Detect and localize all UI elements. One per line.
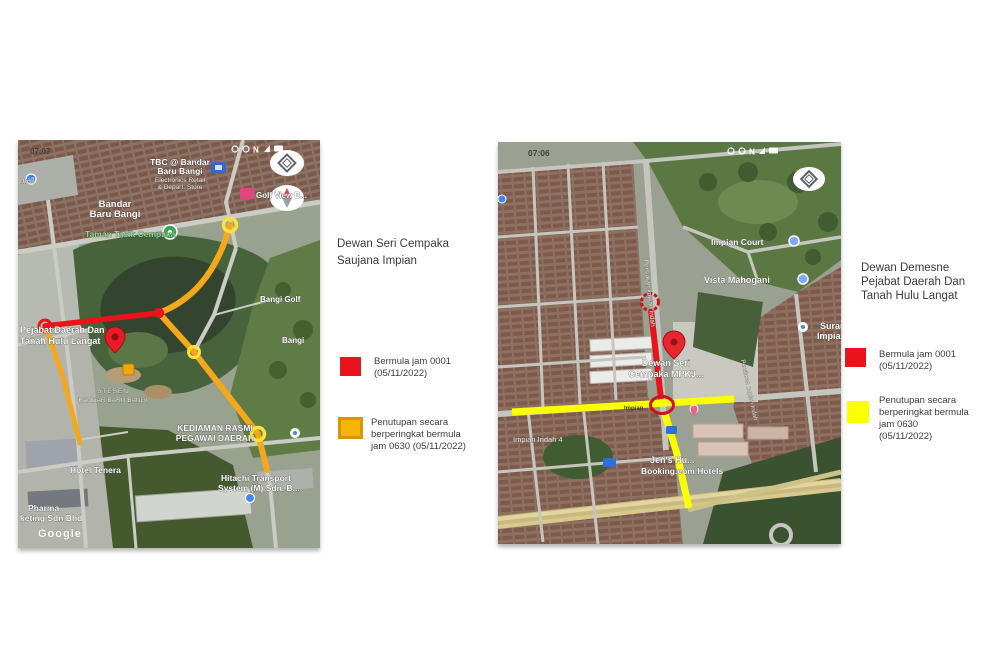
right-map-title-line3: Tanah Hulu Langat: [861, 289, 991, 303]
left-map-title-line2: Saujana Impian: [337, 253, 477, 270]
left-legend-orange-line3: jam 0630 (05/11/2022): [371, 441, 466, 453]
right-legend-yellow-line4: (05/11/2022): [879, 431, 969, 443]
left-store-marker-icon: [211, 162, 226, 173]
vista-marker-icon: [798, 274, 808, 284]
left-map-title: Dewan Seri Cempaka Saujana Impian: [337, 236, 477, 270]
left-legend-orange-swatch: [338, 417, 363, 439]
left-legend-orange-line2: berperingkat bermula: [371, 429, 466, 441]
route-shield-icon: [123, 364, 134, 375]
map-label-surau1: Surau: [820, 321, 841, 331]
map-label-bangi: Bangi: [282, 336, 304, 345]
left-legend-orange-label: Penutupan secara berperingkat bermula ja…: [371, 417, 466, 453]
map-label-hitachi2: System (M) Sdn. B...: [218, 483, 300, 493]
compass-n-glyph: N: [253, 146, 259, 155]
map-label-impian-road: Impian: [624, 406, 644, 412]
map-label-tbc4: & Depart. Store: [158, 184, 203, 191]
compass-n-glyph-right: N: [749, 148, 755, 157]
map-label-pejabat1: Pejabat Daerah Dan: [20, 325, 105, 335]
right-legend-red-label: Bermula jam 0001 (05/11/2022): [879, 349, 956, 373]
left-map-figure: 07:07 N mall TBC @ Bandar Baru Bangi Ele…: [18, 140, 320, 548]
right-legend-red-line1: Bermula jam 0001: [879, 349, 956, 361]
right-map-time: 07:06: [528, 148, 550, 158]
map-label-tbc2: Baru Bangi: [157, 166, 202, 176]
map-label-hitachi1: Hitachi Transport: [221, 473, 291, 483]
map-label-tbc3: Electronics Retail: [155, 177, 206, 184]
page: 07:07 N mall TBC @ Bandar Baru Bangi Ele…: [0, 0, 1000, 670]
map-label-dewan2: Cempaka MPKJ...: [628, 369, 703, 379]
left-map-title-line1: Dewan Seri Cempaka: [337, 236, 477, 253]
map-label-impian-court: Impian Court: [711, 237, 764, 247]
google-watermark: Google: [38, 528, 82, 540]
right-legend-yellow-line2: berperingkat bermula: [879, 407, 969, 419]
map-label-vista: Vista Mahogani: [704, 275, 770, 285]
left-map-image: 07:07 N mall TBC @ Bandar Baru Bangi Ele…: [18, 140, 320, 548]
left-legend-red-line1: Bermula jam 0001: [374, 356, 451, 368]
right-legend-yellow-line3: jam 0630: [879, 419, 969, 431]
map-label-bandar2: Baru Bangi: [90, 209, 141, 220]
map-label-kediaman2: PEGAWAI DAERAH: [176, 433, 254, 443]
left-info-circle-icon: [290, 428, 300, 438]
map-label-pharma1: Pharma: [28, 503, 59, 513]
impian-court-marker-icon: [789, 236, 799, 246]
map-label-pejabat2: Tanah Hulu Langat: [20, 336, 100, 346]
map-label-dewan1: Dewan Seri: [642, 358, 691, 368]
map-label-hotel: Hotel Tenera: [70, 465, 121, 475]
right-legend-yellow-swatch: [847, 401, 869, 423]
surau-marker-icon: [798, 322, 808, 332]
hotel-marker2-icon: [666, 426, 677, 434]
right-map-title-line2: Pejabat Daerah Dan: [861, 275, 991, 289]
map-label-stesen2: BANDAR BARU BANGI: [79, 397, 148, 404]
right-blue-dot-icon: [498, 195, 506, 203]
left-legend-orange-line1: Penutupan secara: [371, 417, 466, 429]
map-label-taman: Taman Tasik Cempaka: [85, 229, 176, 239]
left-blue-dot-icon: [246, 494, 255, 503]
map-label-surau2: Impian: [817, 331, 841, 341]
right-map-figure: 07:06 N Impian Court Vista Mahogani Pers…: [498, 142, 841, 544]
hotel-marker-icon: [603, 458, 616, 467]
map-label-kediaman1: KEDIAMAN RASMI: [177, 423, 253, 433]
right-legend-red-line2: (05/11/2022): [879, 361, 956, 373]
layers-diamond-icon: [270, 150, 304, 176]
layers-diamond-icon-right: [793, 167, 825, 191]
map-label-mall: mall: [20, 176, 35, 185]
right-legend-yellow-label: Penutupan secara berperingkat bermula ja…: [879, 395, 969, 443]
left-legend-red-swatch: [340, 357, 361, 376]
right-legend-red-swatch: [845, 348, 866, 367]
map-label-jens2: Booking.com Hotels: [641, 466, 723, 476]
left-legend-red-label: Bermula jam 0001 (05/11/2022): [374, 356, 451, 380]
map-label-golfview: Golf View B...: [256, 191, 307, 200]
map-label-bangigolf: Bangi Golf: [260, 295, 301, 304]
left-legend-red-line2: (05/11/2022): [374, 368, 451, 380]
map-label-stesen1: STESEN: [97, 388, 129, 395]
map-label-jens1: Jen's Hu...: [650, 455, 695, 465]
right-map-title-line1: Dewan Demesne: [861, 261, 991, 275]
left-pink-marker-icon: [240, 188, 254, 199]
right-legend-yellow-line1: Penutupan secara: [879, 395, 969, 407]
right-map-title: Dewan Demesne Pejabat Daerah Dan Tanah H…: [861, 261, 991, 303]
right-map-image: 07:06 N Impian Court Vista Mahogani Pers…: [498, 142, 841, 544]
map-label-indah4: Impian Indah 4: [513, 435, 563, 444]
map-label-pharma2: keting Sdn Bhd: [20, 513, 82, 523]
left-map-time: 07:07: [30, 147, 51, 156]
